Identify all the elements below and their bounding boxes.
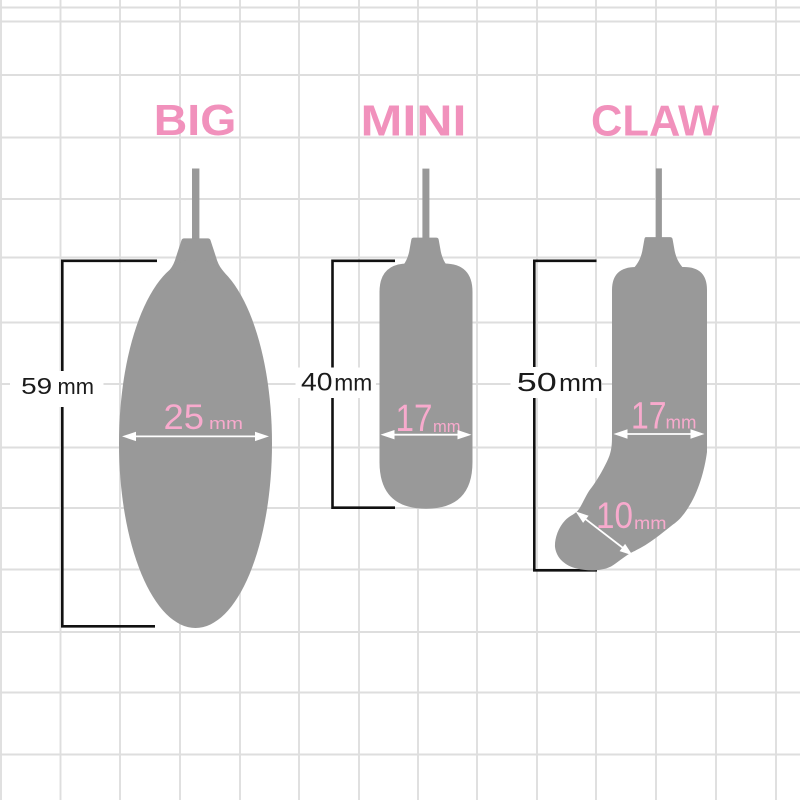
svg-text:25: 25: [164, 398, 205, 437]
svg-text:17: 17: [396, 398, 433, 440]
svg-text:mm: mm: [209, 414, 243, 433]
svg-text:50: 50: [517, 369, 557, 397]
svg-text:BIG: BIG: [154, 96, 237, 145]
svg-text:CLAW: CLAW: [591, 97, 719, 146]
svg-text:40: 40: [301, 369, 333, 397]
svg-text:17: 17: [631, 396, 667, 438]
svg-text:mm: mm: [334, 370, 372, 396]
svg-text:mm: mm: [666, 413, 697, 433]
svg-text:mm: mm: [559, 370, 603, 397]
svg-text:mm: mm: [433, 417, 461, 436]
svg-text:mm: mm: [634, 513, 667, 533]
svg-text:59: 59: [21, 373, 52, 399]
svg-text:MINI: MINI: [361, 97, 467, 146]
svg-text:mm: mm: [58, 374, 95, 399]
svg-text:10: 10: [596, 495, 633, 536]
